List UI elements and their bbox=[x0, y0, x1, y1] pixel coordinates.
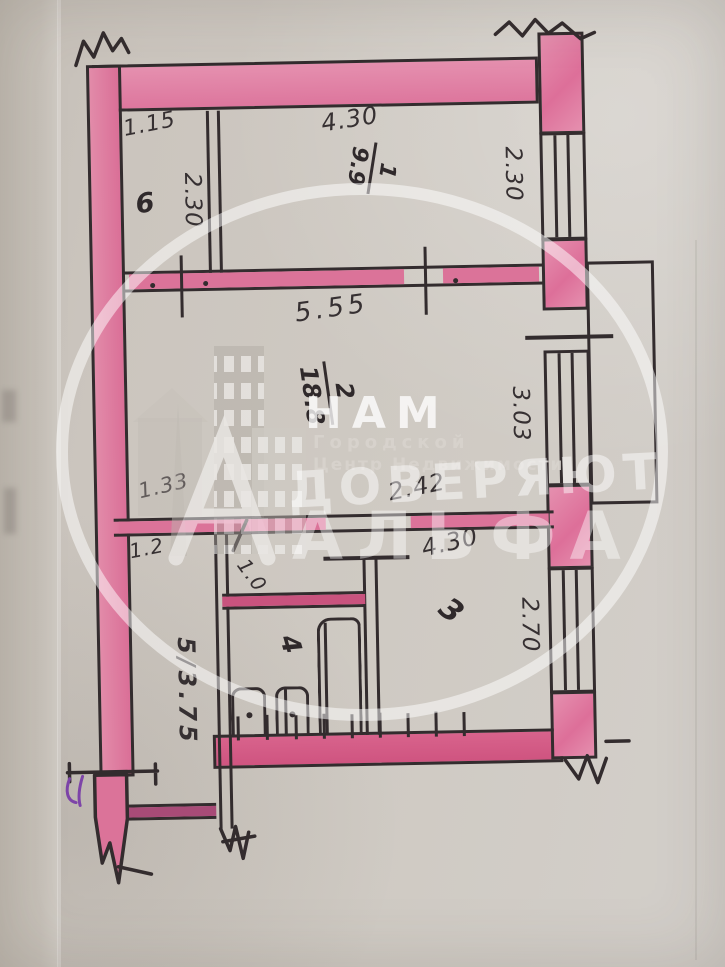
break-bottom-right bbox=[565, 755, 607, 783]
break-top-right bbox=[495, 18, 594, 40]
purple-pen-mark bbox=[67, 776, 83, 805]
dimension-room3-side: 2.70 bbox=[514, 577, 544, 674]
dimension-room1-side: 2.30 bbox=[497, 126, 527, 223]
dimension-tick-small bbox=[233, 520, 248, 550]
break-tick bbox=[118, 866, 151, 875]
room-label-6: 6 bbox=[134, 187, 156, 220]
room-number: 1 bbox=[373, 161, 400, 180]
floor-plan-photo: 1.15 2.30 6 4.30 1 9.9 2.30 5.55 2 18.8 … bbox=[0, 0, 725, 967]
room-label-1: 1 9.9 bbox=[341, 138, 403, 198]
room-label-2: 2 18.8 bbox=[294, 357, 363, 429]
dimension-room2-side: 3.03 bbox=[505, 366, 535, 463]
room-label-5: 5/3.75 bbox=[171, 606, 202, 777]
plan-drawing: 1.15 2.30 6 4.30 1 9.9 2.30 5.55 2 18.8 … bbox=[0, 0, 725, 967]
room-number: 2 bbox=[330, 381, 360, 401]
dimension-room6-depth: 2.30 bbox=[177, 152, 207, 249]
break-top-left bbox=[75, 32, 129, 65]
